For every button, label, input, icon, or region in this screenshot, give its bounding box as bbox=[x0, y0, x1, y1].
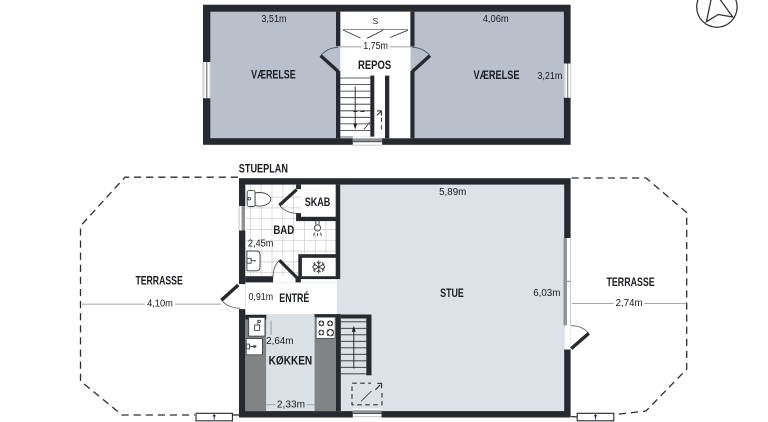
svg-text:2,64m: 2,64m bbox=[266, 336, 293, 347]
svg-text:TERRASSE: TERRASSE bbox=[135, 274, 182, 288]
svg-text:S: S bbox=[373, 17, 379, 26]
svg-text:VÆRELSE: VÆRELSE bbox=[474, 68, 520, 82]
svg-text:TERRASSE: TERRASSE bbox=[607, 275, 655, 289]
svg-text:4,10m: 4,10m bbox=[147, 298, 173, 309]
svg-text:2,33m: 2,33m bbox=[277, 400, 305, 411]
svg-text:1,75m: 1,75m bbox=[363, 41, 388, 52]
svg-text:6,03m: 6,03m bbox=[533, 288, 560, 299]
svg-text:3,21m: 3,21m bbox=[537, 71, 562, 82]
svg-text:4,06m: 4,06m bbox=[483, 14, 509, 25]
svg-text:2,74m: 2,74m bbox=[616, 298, 643, 309]
svg-text:SKAB: SKAB bbox=[305, 195, 331, 209]
svg-text:ENTRÉ: ENTRÉ bbox=[279, 290, 309, 305]
svg-text:KØKKEN: KØKKEN bbox=[269, 354, 313, 368]
svg-text:STUE: STUE bbox=[440, 286, 464, 300]
svg-text:2,45m: 2,45m bbox=[248, 239, 274, 250]
svg-text:5,89m: 5,89m bbox=[439, 187, 466, 198]
svg-text:0,91m: 0,91m bbox=[249, 292, 274, 303]
svg-text:BAD: BAD bbox=[273, 223, 294, 237]
svg-text:3,51m: 3,51m bbox=[261, 14, 286, 25]
svg-text:REPOS: REPOS bbox=[358, 58, 391, 72]
svg-text:STUEPLAN: STUEPLAN bbox=[239, 161, 288, 175]
svg-text:VÆRELSE: VÆRELSE bbox=[251, 68, 296, 82]
